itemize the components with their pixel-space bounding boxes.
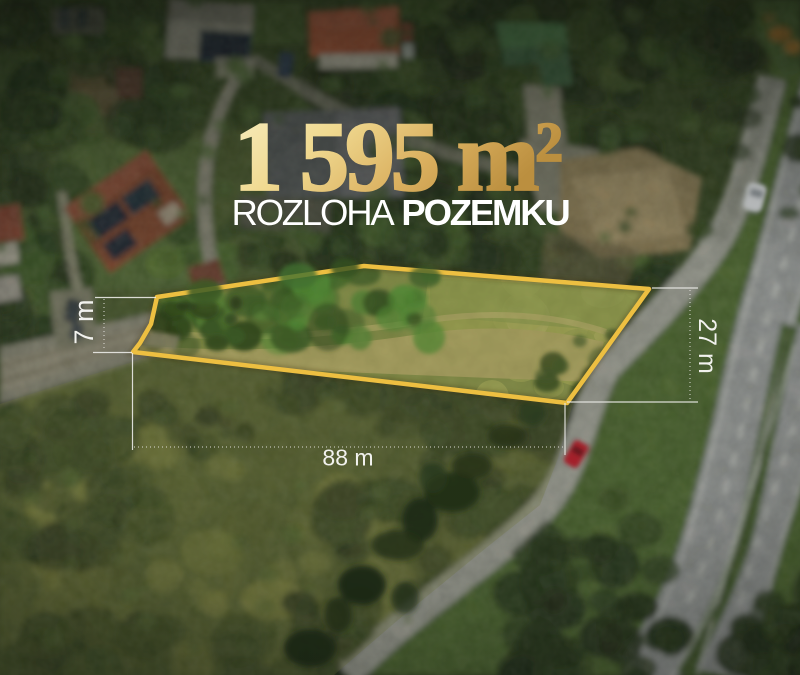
svg-text:27 m: 27 m	[693, 318, 721, 374]
svg-text:7 m: 7 m	[69, 299, 99, 344]
svg-text:88 m: 88 m	[322, 445, 373, 471]
